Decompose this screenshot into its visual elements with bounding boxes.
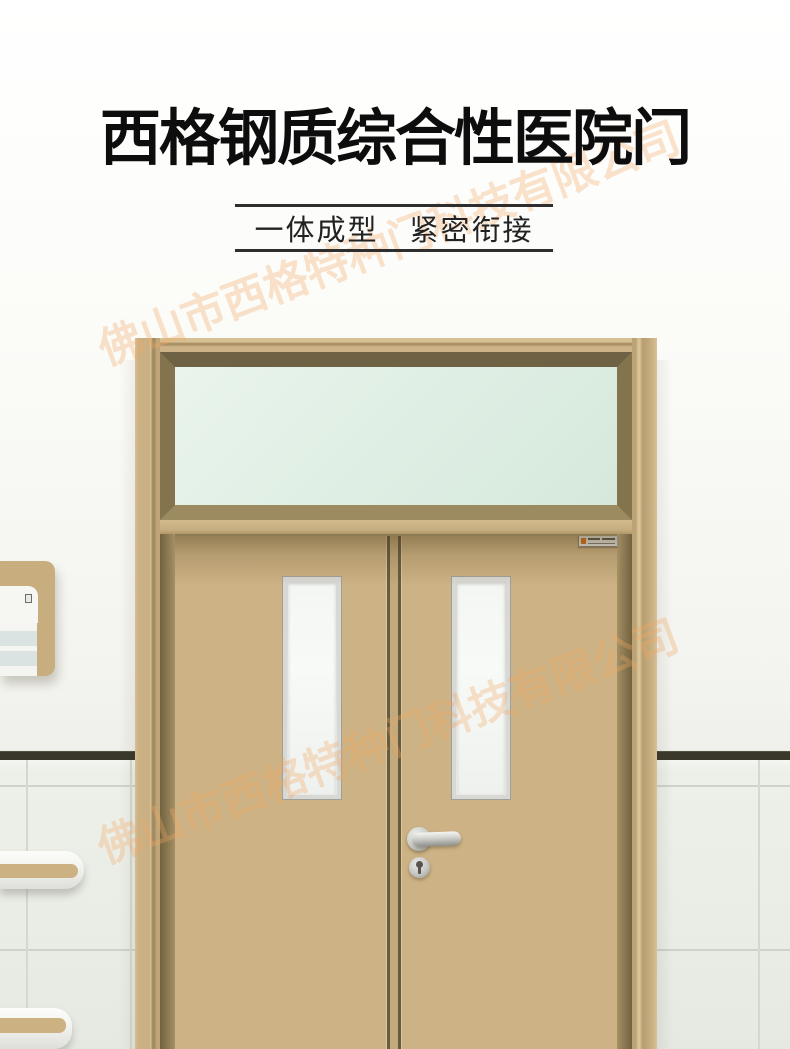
tile-grout-line — [758, 760, 760, 1049]
vision-glass — [457, 582, 505, 794]
fixture-stripe — [0, 631, 37, 646]
brand-plate-text-mark — [602, 538, 615, 540]
meeting-stile-gap — [390, 534, 398, 1049]
page-title: 西格钢质综合性医院门 — [0, 100, 790, 176]
transom-rail — [160, 520, 632, 534]
brand-plate-text-mark — [588, 543, 615, 544]
subtitle-text: 一体成型 紧密衔接 — [254, 207, 533, 249]
vision-glass — [288, 582, 336, 794]
handrail-lower — [0, 1008, 72, 1049]
handrail-stripe — [0, 864, 78, 878]
keyhole-icon — [416, 861, 423, 874]
vision-panel-right — [452, 577, 510, 799]
wall-fixture — [0, 561, 55, 676]
fixture-label — [25, 594, 32, 603]
door-reveal-right — [617, 534, 632, 1049]
frame-architrave-right — [632, 338, 657, 1049]
brand-plate-logo — [581, 538, 586, 544]
transom-window — [160, 352, 632, 520]
subtitle-banner: 一体成型 紧密衔接 — [235, 204, 553, 252]
frame-shadow-right — [657, 360, 673, 1049]
door-leaf-left — [175, 534, 390, 1049]
brand-plate-text-mark — [588, 538, 600, 540]
brand-plate — [578, 535, 618, 547]
product-poster: 佛山市西格特种门科技有限公司 佛山市西格特种门科技有限公司 西格钢质综合性医院门… — [0, 0, 790, 1049]
vision-panel-left — [283, 577, 341, 799]
door-leaf-right — [398, 534, 617, 1049]
frame-head — [135, 338, 657, 352]
lock-cylinder — [409, 857, 430, 878]
handrail-stripe — [0, 1018, 66, 1033]
keyhole-slot — [418, 866, 421, 874]
fixture-panel — [0, 586, 38, 623]
frame-architrave-left — [135, 338, 160, 1049]
door-handle-lever — [413, 831, 461, 847]
frame-shadow-left — [119, 360, 135, 1049]
double-door — [175, 534, 617, 1049]
door-reveal-left — [160, 534, 175, 1049]
hospital-door-assembly — [135, 338, 657, 1049]
fixture-stripe — [0, 651, 37, 666]
tile-grout-line — [26, 760, 28, 1049]
handrail-upper — [0, 851, 84, 889]
